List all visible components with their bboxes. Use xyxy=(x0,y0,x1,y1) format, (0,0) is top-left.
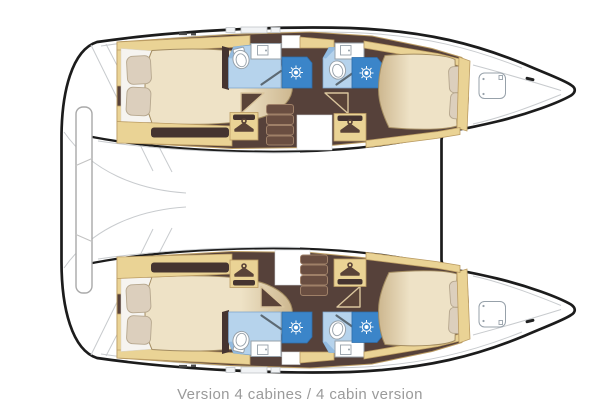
caption-text: Version 4 cabines / 4 cabin version xyxy=(177,386,423,403)
bed-pillow xyxy=(126,315,151,344)
wardrobe-slot xyxy=(233,280,255,286)
deck-hatch xyxy=(241,27,267,33)
deck-cleat-mark xyxy=(191,365,196,367)
showerhead-icon xyxy=(360,320,374,334)
deck-cleat-mark xyxy=(191,33,196,35)
bulkhead-panel xyxy=(282,36,300,49)
deck-cleat-mark xyxy=(179,33,187,36)
corridor-floor xyxy=(297,115,332,150)
showerhead-icon xyxy=(360,66,374,80)
deck-hatch xyxy=(226,28,235,33)
companionway-steps xyxy=(267,105,294,146)
hatch-hinge xyxy=(482,305,484,307)
faucet-dot xyxy=(348,349,350,351)
aft-crossbeam xyxy=(76,107,92,293)
forward-cabin-bed xyxy=(379,271,458,346)
showerhead-icon xyxy=(289,321,303,335)
hatch-hinge xyxy=(482,320,484,322)
aft-shelf-inset xyxy=(151,263,229,273)
deck-hatch xyxy=(226,368,235,373)
hatch-hinge xyxy=(482,78,484,80)
wardrobe-slot xyxy=(338,279,363,285)
bathroom-wall-shadow xyxy=(222,46,229,90)
bulkhead-panel xyxy=(282,352,300,365)
faucet-dot xyxy=(265,349,267,351)
showerhead-icon xyxy=(289,66,303,80)
bed-pillow xyxy=(126,87,151,116)
bed-pillow xyxy=(126,284,151,313)
faucet-dot xyxy=(348,50,350,52)
companionway-steps xyxy=(301,255,328,296)
deck-cleat-mark xyxy=(179,365,187,368)
deck-hatch xyxy=(271,368,280,373)
faucet-dot xyxy=(265,50,267,52)
bathroom-wall-shadow xyxy=(222,310,229,354)
floorplan-svg xyxy=(0,0,600,400)
bed-pillow xyxy=(126,55,151,84)
deck-hatch xyxy=(241,367,267,373)
deck-hatch xyxy=(271,28,280,33)
aft-shelf-inset xyxy=(151,128,229,138)
caption: Version 4 cabines / 4 cabin version xyxy=(0,386,600,403)
forward-cabin-bed xyxy=(379,54,458,129)
hatch-hinge xyxy=(482,93,484,95)
